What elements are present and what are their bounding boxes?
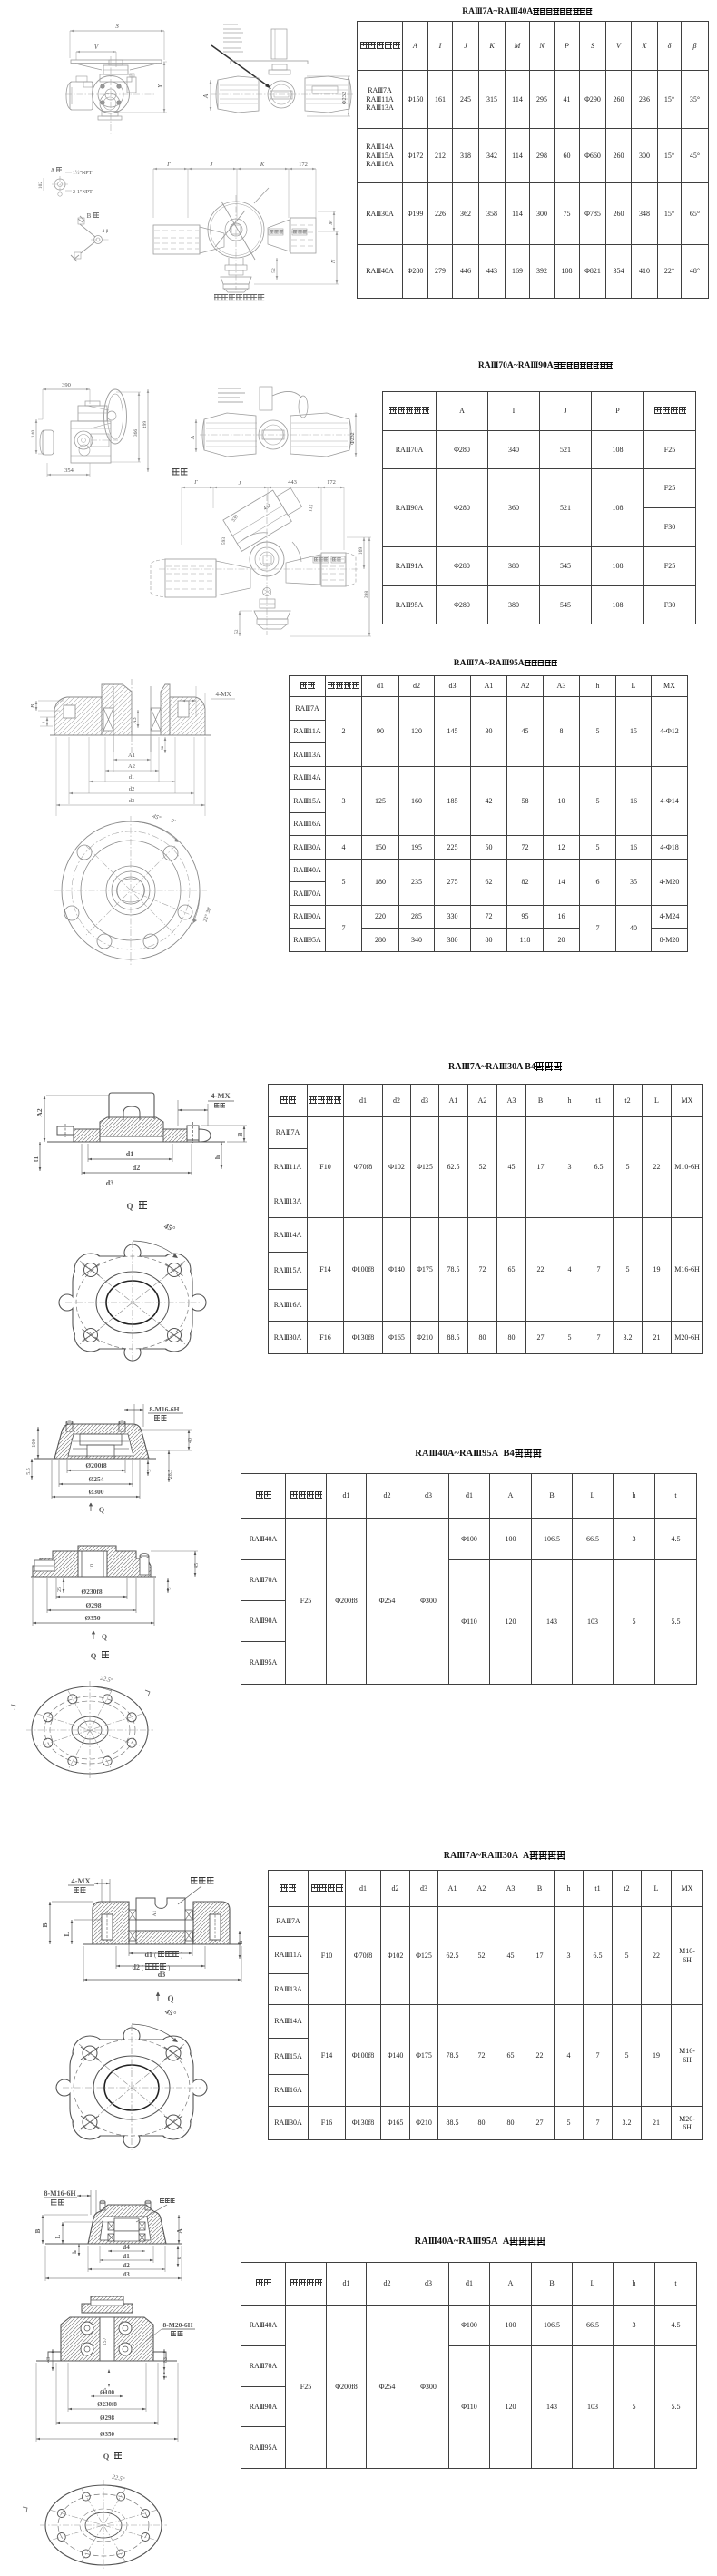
svg-text:(: ( [142,1964,144,1971]
svg-text:499: 499 [142,421,148,429]
svg-text:157: 157 [103,2338,108,2346]
svg-text:J: J [239,481,241,487]
svg-text:4-MX: 4-MX [215,691,231,698]
svg-text:45°: 45° [162,1221,177,1234]
svg-text:B: B [87,212,92,220]
svg-text:h: h [213,1155,221,1159]
svg-text:Ø230f8: Ø230f8 [97,2401,117,2408]
svg-text:d2: d2 [123,2262,130,2269]
svg-text:0': 0' [170,818,176,825]
svg-text:d3: d3 [129,798,135,804]
svg-text:d3: d3 [158,1971,165,1979]
svg-text:d3: d3 [123,2271,130,2278]
svg-text:A2: A2 [128,763,135,770]
svg-text:A: A [50,167,54,174]
svg-text:28.5: 28.5 [168,1470,173,1480]
svg-text:B: B [41,1922,49,1927]
svg-text:A3: A3 [133,717,138,723]
svg-text:B: B [34,2228,42,2233]
svg-text:339: 339 [231,514,240,523]
svg-text:432: 432 [262,503,271,512]
svg-text:140: 140 [31,430,36,438]
svg-text:169: 169 [358,547,364,556]
svg-text:t: t [42,722,47,723]
svg-text:L: L [63,1932,71,1936]
svg-text:A1: A1 [152,1910,158,1916]
svg-text:S: S [115,23,119,30]
svg-text:d2: d2 [133,1164,140,1172]
svg-text:B: B [236,1132,244,1136]
svg-text:443: 443 [288,479,297,486]
svg-text:10: 10 [90,1564,95,1569]
svg-text:22° 30': 22° 30' [202,906,213,922]
svg-text:Γ: Γ [166,162,171,168]
svg-text:Ø298: Ø298 [85,1601,101,1609]
svg-text:Ø350: Ø350 [100,2431,114,2438]
svg-text:102: 102 [38,182,44,190]
svg-text:(: ( [154,1952,157,1959]
svg-text:Φ232: Φ232 [341,92,348,105]
svg-text:J: J [211,162,214,168]
svg-text:t1: t1 [32,1156,40,1162]
svg-text:4-MX: 4-MX [71,1876,91,1885]
svg-text:A2: A2 [35,1108,44,1116]
svg-text:83: 83 [163,2357,169,2363]
svg-text:354: 354 [64,467,74,474]
svg-text:Γ: Γ [193,480,198,486]
svg-text:43: 43 [46,2357,52,2363]
svg-text:d1: d1 [126,1150,133,1158]
svg-text:8-M16-6H: 8-M16-6H [150,1405,180,1413]
svg-text:Q: Q [99,1506,104,1514]
svg-text:sa: sa [161,745,165,750]
svg-text:40: 40 [188,1438,193,1443]
svg-text:22.5°: 22.5° [112,2474,126,2483]
svg-text:22.5°: 22.5° [100,1676,114,1685]
svg-text:Q: Q [103,2452,110,2461]
svg-text:5.5: 5.5 [26,1468,32,1475]
svg-text:8-M20-6H: 8-M20-6H [163,2321,193,2329]
svg-text:A: A [190,436,196,440]
svg-text:Ø350: Ø350 [84,1614,100,1622]
svg-text:3: 3 [147,1470,152,1472]
svg-text:Ø298: Ø298 [100,2414,114,2422]
svg-text:h: h [72,2250,78,2254]
svg-text:Q: Q [91,1651,97,1660]
svg-text:d2: d2 [133,1963,140,1971]
svg-text:A: A [176,2228,183,2233]
svg-text:172: 172 [327,479,336,486]
svg-text:Ø254: Ø254 [88,1475,103,1483]
svg-text:M: M [328,220,334,226]
svg-text:X: X [157,84,164,89]
svg-text:Q: Q [102,1633,107,1641]
svg-text:1½"NPT: 1½"NPT [73,170,93,176]
svg-text:Ø300: Ø300 [88,1488,103,1496]
svg-text:d2: d2 [129,786,135,792]
svg-text:d1: d1 [123,2253,130,2260]
svg-text:Ø200f8: Ø200f8 [85,1461,107,1470]
svg-text:593: 593 [221,537,227,546]
svg-text:45°: 45° [163,2006,178,2019]
svg-text:45°: 45° [152,813,162,822]
svg-text:52: 52 [271,268,277,273]
svg-text:25: 25 [57,1587,63,1592]
svg-text:B: B [30,704,36,708]
svg-text:L: L [54,2234,62,2238]
svg-text:Φ232: Φ232 [350,432,356,444]
svg-text:): ) [181,1952,183,1959]
svg-text:A: A [202,93,210,99]
svg-text:100: 100 [31,1439,37,1448]
svg-text:Q: Q [167,1994,173,2003]
svg-text:5: 5 [167,1588,172,1590]
svg-text:4-MX: 4-MX [211,1091,231,1100]
svg-text:172: 172 [299,162,308,168]
svg-text:d1: d1 [129,774,135,781]
svg-text:366: 366 [133,429,139,438]
svg-text:N: N [330,259,337,264]
svg-text:8-M16-6H: 8-M16-6H [44,2189,76,2197]
svg-text:A1: A1 [128,752,135,759]
svg-text:h: h [236,1940,244,1944]
svg-text:Ø100: Ø100 [100,2389,114,2396]
svg-text:45: 45 [194,1563,200,1568]
svg-text:Q: Q [126,1202,133,1211]
svg-text:390: 390 [62,382,71,388]
svg-text:4-β: 4-β [103,230,109,234]
svg-text:d3: d3 [106,1179,113,1187]
svg-text:V: V [94,44,99,51]
svg-text:52: 52 [235,629,240,634]
svg-text:d4: d4 [123,2244,130,2251]
svg-text:): ) [168,1964,171,1971]
svg-text:K: K [260,162,265,168]
svg-text:398: 398 [364,591,369,599]
svg-text:115: 115 [308,504,314,512]
svg-text:Ø230f8: Ø230f8 [81,1588,103,1596]
svg-text:2-1"NPT: 2-1"NPT [73,190,93,195]
svg-text:5: 5 [163,2375,169,2378]
svg-text:d1: d1 [145,1951,152,1959]
